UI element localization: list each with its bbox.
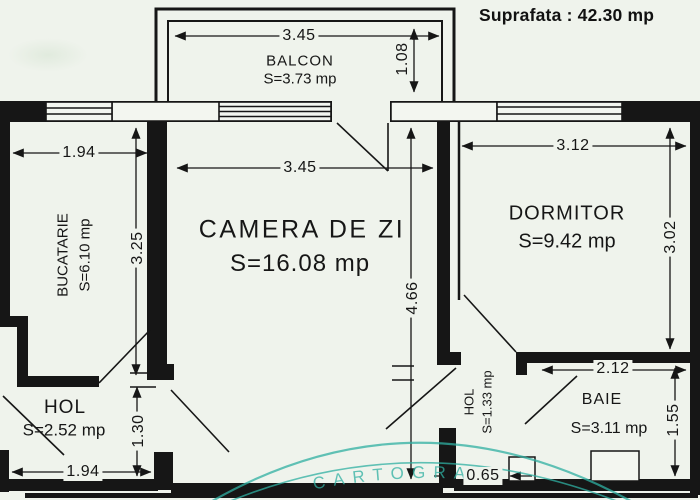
total-area-label: Suprafata : 42.30 mp (479, 5, 697, 26)
dim-door-width: 0.65 (463, 467, 502, 485)
dim-camera-width: 3.45 (280, 159, 319, 177)
balcony-window (219, 102, 331, 121)
room-area-bucatarie: S=6.10 mp (74, 213, 96, 297)
room-area-hol-1: S=2.52 mp (23, 419, 106, 440)
dim-bucatarie-depth: 3.25 (129, 228, 147, 267)
bedroom-door-swing (464, 295, 516, 352)
hall2-door-swing (386, 368, 456, 429)
dim-baie-width: 2.12 (593, 360, 632, 378)
bath-wall-hook (516, 352, 527, 375)
dim-hol-width: 1.94 (63, 463, 102, 481)
dim-dormitor-depth: 3.02 (662, 217, 680, 256)
balcony-door-swing (337, 123, 388, 171)
dim-bucatarie-width: 1.94 (59, 144, 98, 162)
room-area-hol-2: S=1.33 mp (478, 370, 496, 433)
room-label-camera-de-zi: CAMERA DE ZI (199, 214, 405, 245)
right-wall (690, 101, 700, 495)
kitchen-living-wall (147, 122, 167, 370)
dim-hol-depth: 1.30 (130, 411, 148, 450)
room-label-bucatarie-block: BUCATARIE S=6.10 mp (52, 213, 96, 297)
left-wall (0, 101, 10, 322)
dim-balcon-width: 3.45 (279, 27, 318, 45)
bath-door-swing (525, 376, 577, 424)
dim-balcon-depth: 1.08 (394, 39, 412, 78)
room-label-bucatarie: BUCATARIE (52, 213, 74, 297)
kitchen-bottom-wall (17, 376, 99, 387)
room-label-dormitor: DORMITOR (509, 202, 626, 227)
living-hall-door-swing (171, 390, 229, 452)
pier-left (112, 102, 220, 121)
bath-duct (591, 451, 639, 481)
room-area-dormitor: S=9.42 mp (518, 230, 615, 255)
room-label-balcon: BALCON (266, 53, 334, 72)
dim-dormitor-width: 3.12 (553, 137, 592, 155)
room-label-hol-2: HOL (460, 370, 478, 433)
bottom-wall-2 (171, 483, 443, 493)
room-label-hol-1: HOL (44, 396, 86, 420)
pier-right (391, 102, 497, 121)
room-label-baie: BAIE (582, 390, 622, 410)
bedroom-window (497, 102, 622, 121)
kitchen-door-swing (99, 330, 150, 383)
room-area-camera-de-zi: S=16.08 mp (230, 249, 370, 279)
room-area-baie: S=3.11 mp (571, 419, 648, 439)
dim-camera-depth: 4.66 (404, 278, 422, 317)
room-label-hol-2-block: HOL S=1.33 mp (460, 370, 495, 433)
room-area-balcon: S=3.73 mp (264, 71, 337, 90)
bath-step (509, 457, 535, 481)
living-bedroom-wall-foot (437, 352, 461, 365)
kitchen-living-wall-foot (147, 364, 174, 380)
left-wall-lower (17, 322, 28, 382)
living-bedroom-wall (437, 122, 450, 365)
dim-baie-depth: 1.55 (665, 400, 683, 439)
kitchen-window (46, 102, 112, 121)
floorplan-page: CARTOGRAF Suprafata : 42.30 mp BALCON S=… (0, 0, 700, 500)
